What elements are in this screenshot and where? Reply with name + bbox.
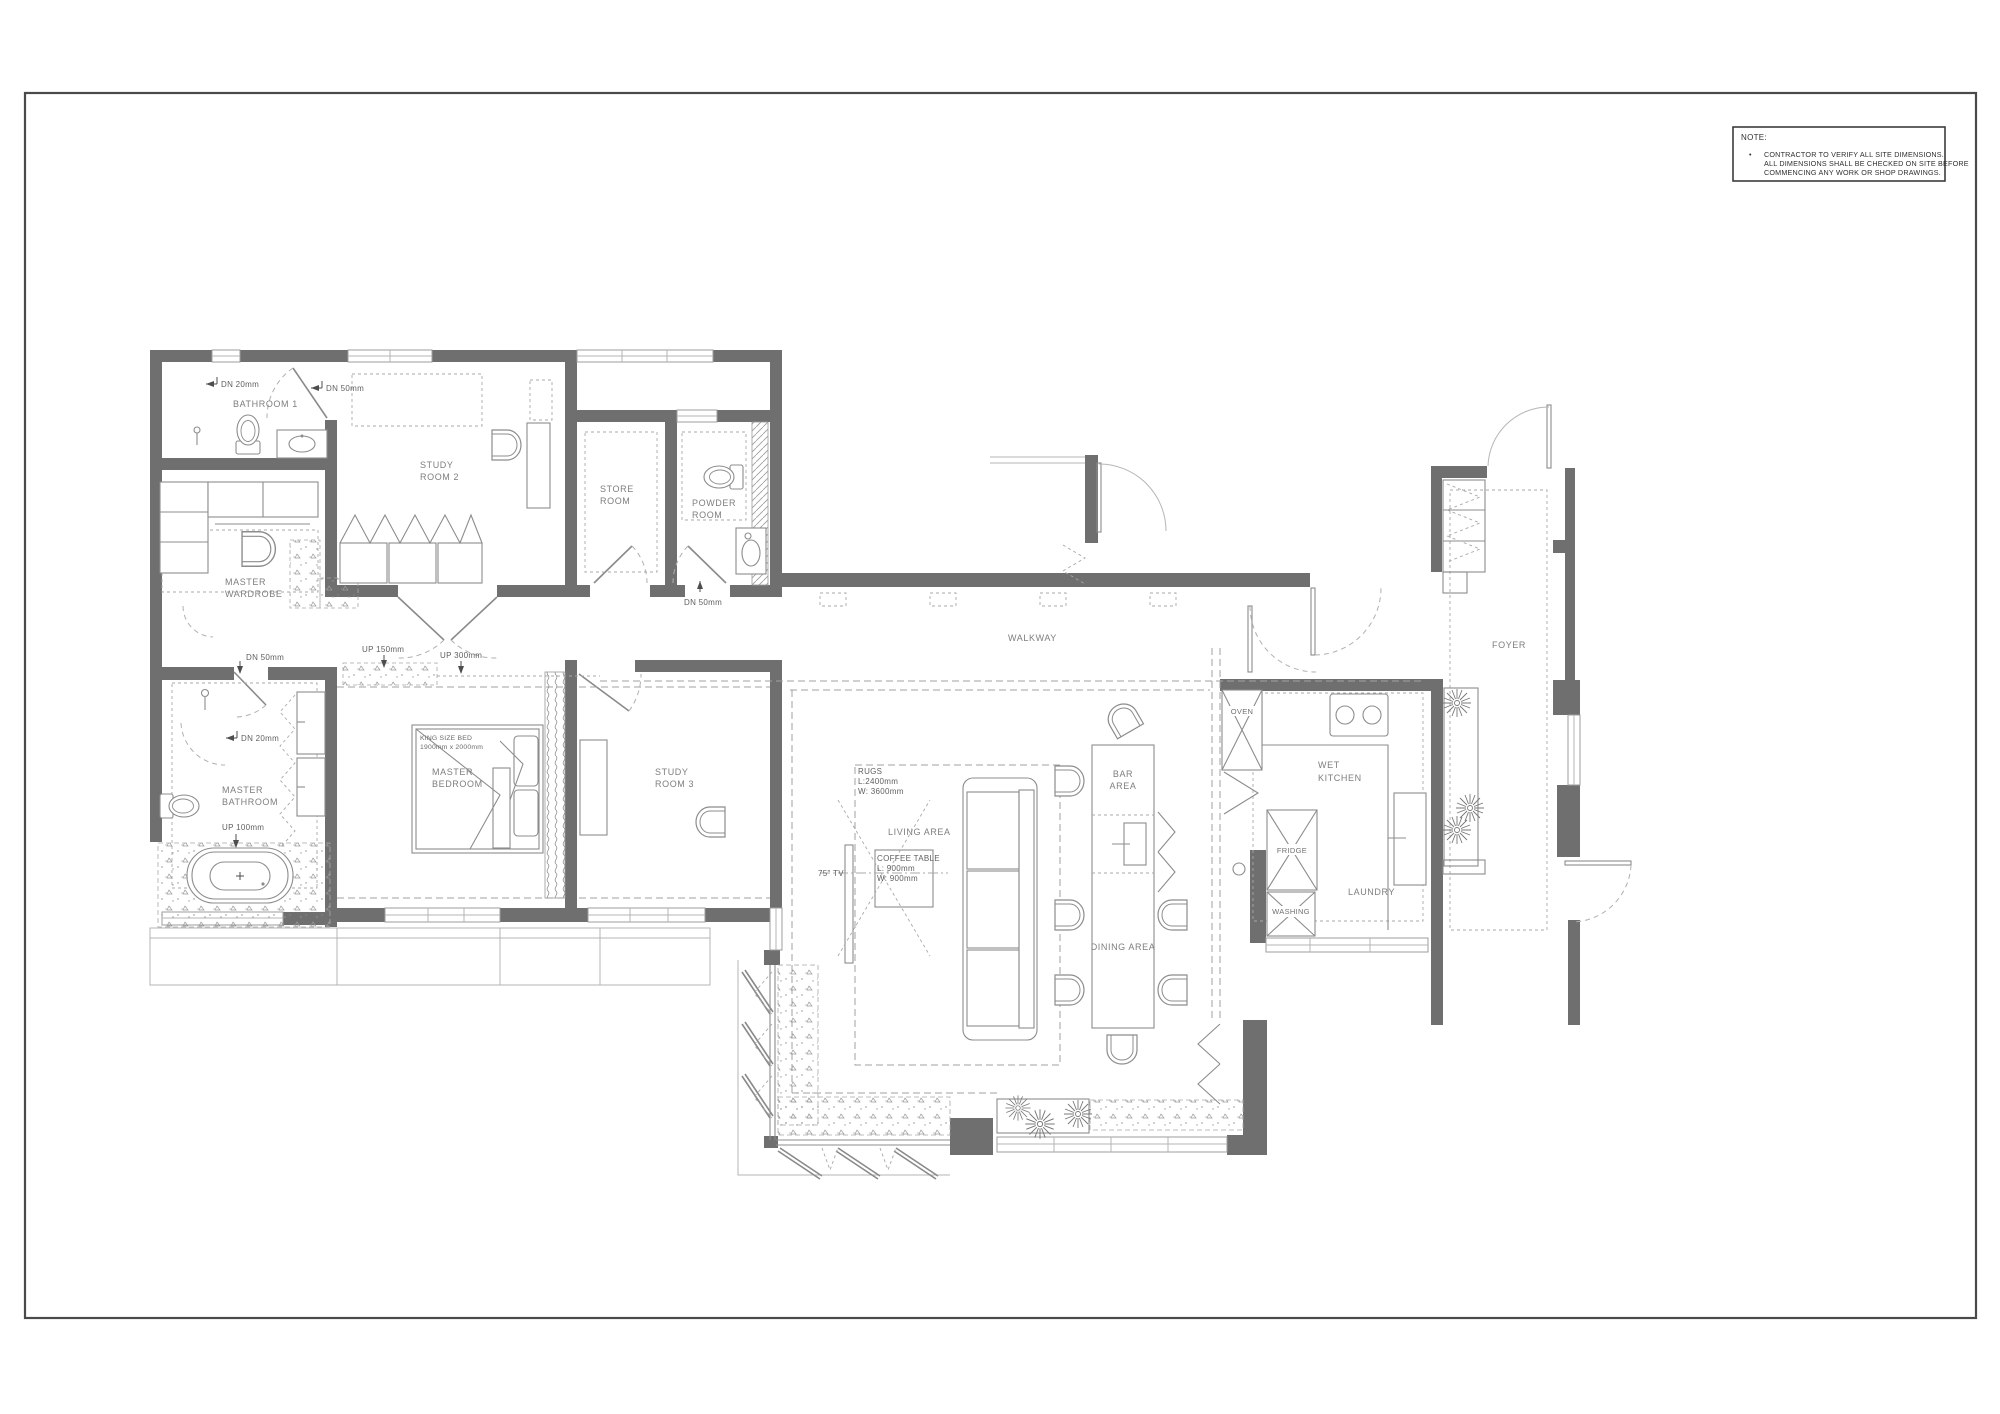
threshold-up150: [343, 663, 437, 685]
label-dn50-mbath: DN 50mm: [246, 653, 284, 662]
label-coffee-table-l2: L: 900mm: [877, 864, 915, 873]
chair-symbol: [696, 807, 725, 837]
label-up100-mbath: UP 100mm: [222, 823, 264, 832]
label-washing: WASHING: [1272, 907, 1310, 916]
note-line-1: CONTRACTOR TO VERIFY ALL SITE DIMENSIONS…: [1764, 150, 1944, 159]
room-label-dining: DINING AREA: [1091, 942, 1156, 952]
room-label-study-3-l2: ROOM 3: [655, 779, 694, 789]
note-bullet: •: [1749, 150, 1752, 159]
chair-symbol: [1055, 900, 1084, 930]
label-dn50-bath1: DN 50mm: [326, 384, 364, 393]
room-label-kitchen-l2: KITCHEN: [1318, 773, 1362, 783]
room-label-store-l1: STORE: [600, 484, 634, 494]
room-label-walkway: WALKWAY: [1008, 633, 1057, 643]
room-label-wardrobe-l2: WARDROBE: [225, 589, 282, 599]
chair-symbol: [1107, 1035, 1137, 1064]
feature-wall: [545, 672, 565, 898]
label-dn20-mbath: DN 20mm: [241, 734, 279, 743]
room-label-foyer: FOYER: [1492, 640, 1526, 650]
floor-plan-drawing: NOTE: • CONTRACTOR TO VERIFY ALL SITE DI…: [0, 0, 2000, 1414]
cooktop-symbol: [1330, 694, 1388, 736]
room-label-store-l2: ROOM: [600, 496, 630, 506]
note-line-2: ALL DIMENSIONS SHALL BE CHECKED ON SITE …: [1764, 159, 1969, 168]
label-up300-corridor: UP 300mm: [440, 651, 482, 660]
note-line-3: COMMENCING ANY WORK OR SHOP DRAWINGS.: [1764, 168, 1941, 177]
label-coffee-table-l1: COFFEE TABLE: [877, 854, 940, 863]
room-label-study-3-l1: STUDY: [655, 767, 689, 777]
room-label-wardrobe-l1: MASTER: [225, 577, 266, 587]
label-rugs-l3: W: 3600mm: [858, 787, 904, 796]
note-box: NOTE: • CONTRACTOR TO VERIFY ALL SITE DI…: [1733, 127, 1969, 181]
floor-plan-sheet: NOTE: • CONTRACTOR TO VERIFY ALL SITE DI…: [0, 0, 2000, 1414]
label-rugs-l1: RUGS: [858, 767, 882, 776]
room-label-powder-l1: POWDER: [692, 498, 736, 508]
label-king-bed-l1: KING SIZE BED: [420, 735, 472, 742]
chair-symbol: [1055, 975, 1084, 1005]
room-label-bar-l1: BAR: [1113, 769, 1133, 779]
room-label-bar-l2: AREA: [1110, 781, 1137, 791]
chair-symbol: [1055, 766, 1084, 796]
label-dn50-powder: DN 50mm: [684, 598, 722, 607]
label-oven: OVEN: [1231, 707, 1253, 716]
room-label-study-2-l1: STUDY: [420, 460, 454, 470]
room-label-mbath-l2: BATHROOM: [222, 797, 278, 807]
room-label-kitchen-l1: WET: [1318, 760, 1340, 770]
room-label-mbed-l1: MASTER: [432, 767, 473, 777]
room-label-mbath-l1: MASTER: [222, 785, 263, 795]
room-label-laundry: LAUNDRY: [1348, 887, 1395, 897]
chair-symbol: [1158, 975, 1187, 1005]
label-dn20-bath1: DN 20mm: [221, 380, 259, 389]
bathtub-symbol: [187, 848, 293, 903]
toilet-symbol: [160, 794, 199, 818]
toilet-symbol: [236, 415, 260, 454]
sofa-symbol: [963, 778, 1037, 1040]
chair-symbol: [242, 532, 275, 567]
room-label-bathroom-1: BATHROOM 1: [233, 399, 298, 409]
kitchen-sink-symbol: [1394, 793, 1426, 885]
label-rugs-l2: L:2400mm: [858, 777, 898, 786]
room-label-living: LIVING AREA: [888, 827, 951, 837]
chair-symbol: [492, 430, 521, 460]
toilet-symbol: [704, 465, 743, 489]
room-label-mbed-l2: BEDROOM: [432, 779, 483, 789]
room-label-study-2-l2: ROOM 2: [420, 472, 459, 482]
label-tv: 75" TV: [818, 869, 844, 878]
label-fridge: FRIDGE: [1277, 846, 1307, 855]
label-coffee-table-l3: W: 900mm: [877, 874, 918, 883]
room-label-powder-l2: ROOM: [692, 510, 722, 520]
label-king-bed-l2: 1900mm x 2000mm: [420, 744, 483, 751]
tv-symbol: [845, 845, 853, 963]
note-title: NOTE:: [1741, 133, 1767, 142]
label-up150-corridor: UP 150mm: [362, 645, 404, 654]
chair-symbol: [1158, 900, 1187, 930]
